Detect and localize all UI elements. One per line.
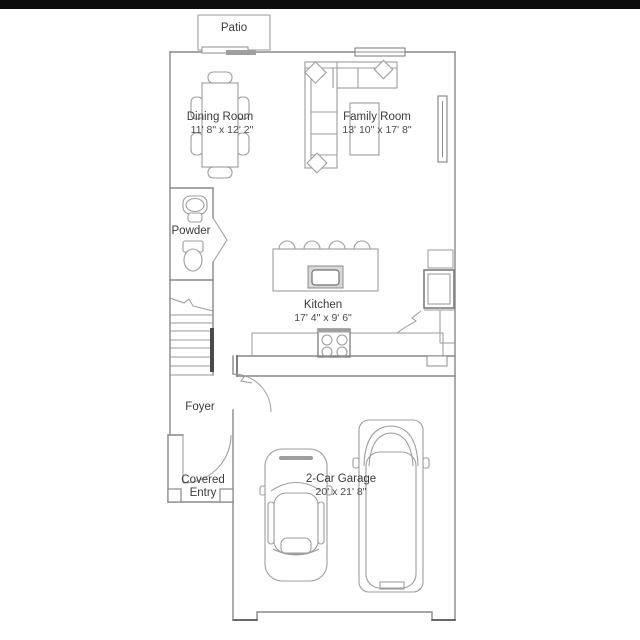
dining-room-dims: 11' 8" x 12' 2"	[191, 124, 254, 136]
cabinet	[428, 250, 453, 268]
floor-plan-drawing: Patio Dining Room 11' 8" x 12' 2"	[0, 0, 640, 640]
stair-handrail	[210, 328, 214, 372]
kitchen-garage-wall	[237, 356, 455, 376]
dining-chair	[208, 72, 232, 83]
bar-stool	[354, 241, 370, 249]
entry-post	[220, 489, 233, 502]
vent	[427, 356, 447, 366]
truck-icon	[353, 420, 429, 592]
car-icon	[260, 449, 332, 581]
bar-stool	[329, 241, 345, 249]
kitchen-door-leaf	[397, 311, 421, 333]
floor-plan-page: Patio Dining Room 11' 8" x 12' 2"	[0, 0, 640, 640]
garage-label: 2-Car Garage	[306, 473, 376, 485]
door-swing-arc	[233, 374, 271, 412]
window-right-icon	[438, 96, 447, 162]
patio-label: Patio	[221, 22, 247, 34]
family-room-label: Family Room	[343, 111, 411, 123]
bar-stool	[304, 241, 320, 249]
foyer-garage-door	[233, 356, 271, 412]
refrigerator-icon	[424, 270, 454, 308]
entry-post	[168, 489, 181, 502]
top-letterbox-bar	[0, 0, 640, 9]
stair-break-line	[170, 298, 213, 311]
covered-entry-label-1: Covered	[181, 474, 224, 486]
powder-label: Powder	[172, 225, 211, 237]
dining-chair	[208, 167, 232, 178]
toilet-icon	[183, 241, 203, 271]
powder-sink-icon	[183, 196, 207, 222]
foyer-label: Foyer	[185, 401, 215, 413]
kitchen-counter	[252, 329, 443, 357]
kitchen-island	[273, 241, 378, 291]
powder-door	[213, 218, 227, 262]
kitchen-label: Kitchen	[304, 299, 342, 311]
staircase	[170, 280, 214, 375]
covered-entry-label-2: Entry	[190, 487, 217, 499]
dining-room-label: Dining Room	[187, 111, 253, 123]
dining-chair	[191, 133, 203, 155]
family-room-dims: 13' 10" x 17' 8"	[342, 124, 412, 136]
bar-stool	[279, 241, 295, 249]
patio: Patio	[198, 15, 270, 55]
stove-icon	[318, 329, 350, 357]
pantry-and-fridge	[397, 250, 455, 343]
island-sink-icon	[308, 266, 343, 288]
window-top-icon	[355, 48, 405, 56]
dining-chair	[237, 133, 249, 155]
garage-dims: 20' x 21' 8"	[316, 486, 367, 498]
sliding-door	[202, 47, 256, 55]
kitchen-dims: 17' 4" x 9' 6"	[294, 312, 352, 324]
